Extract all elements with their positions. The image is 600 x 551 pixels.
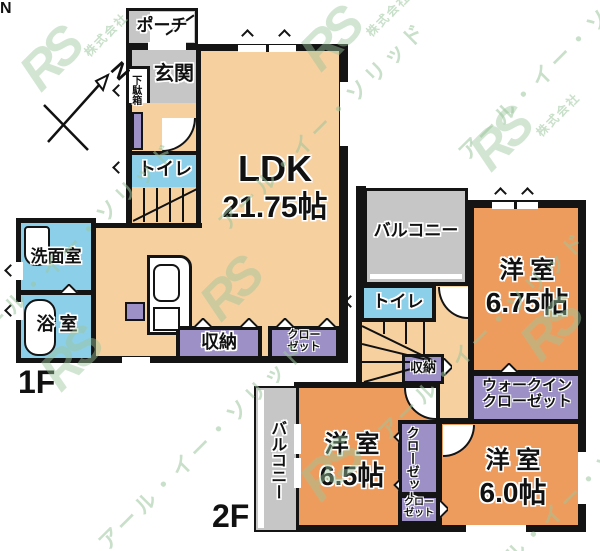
window-1f-bottom — [122, 357, 150, 364]
bedroom-65-name: 洋 室 — [300, 432, 404, 458]
hall-closet-1f — [132, 112, 143, 150]
storage-1f-label: 収納 — [180, 333, 258, 352]
closet-2f-vertical-label-1: クロー — [405, 426, 420, 465]
bedroom-60-name: 洋 室 — [448, 448, 578, 474]
bathroom-label: 浴 室 — [20, 315, 94, 334]
closet-door-mark — [276, 318, 294, 327]
svg-text:N: N — [106, 57, 130, 86]
entrance-label: 玄関 — [146, 64, 202, 86]
storage-door-mark — [240, 318, 258, 327]
window-chevron — [4, 304, 17, 317]
bedroom-675-size: 6.75帖 — [470, 288, 584, 318]
window-chevron — [4, 264, 17, 277]
bedroom-675-name: 洋 室 — [472, 258, 582, 284]
watermark-company: 株式会社 — [362, 0, 414, 40]
porch-label: ポーチ — [128, 17, 196, 35]
storage-door-mark — [194, 318, 212, 327]
kitchen-stove — [153, 307, 180, 331]
compass-north-arrow: N — [30, 50, 130, 155]
window-chevron — [494, 187, 507, 200]
stairs-2f-lines — [362, 322, 442, 386]
closet-2f-small-label-2: ゼット — [404, 508, 434, 519]
toilet-1f-label: トイレ — [130, 160, 200, 179]
floor-plan-canvas: RS 株式会社 RS 株式会社 RS 株式会社 RS RS RS RS アール・… — [0, 0, 600, 551]
washroom-label: 洗面室 — [18, 248, 94, 266]
window-2f-bottom — [466, 525, 526, 532]
wall-segment — [356, 186, 366, 288]
refrigerator-space — [125, 302, 145, 321]
closet-door-mark — [318, 318, 336, 327]
watermark-brand: アール・イー・ソリッド — [451, 0, 600, 166]
window-1f-right — [340, 82, 349, 146]
balcony-2f-top-label: バルコニー — [366, 222, 466, 240]
closet-1f-label-1: クロー — [288, 329, 321, 341]
floor-2f-label: 2F — [212, 498, 249, 535]
entrance-door-gap — [148, 42, 186, 50]
stairs-1f-lines — [133, 188, 199, 222]
closet-1f-label-2: ゼット — [288, 341, 321, 353]
window-tick — [514, 202, 517, 209]
bedroom-60-size: 6.0帖 — [446, 478, 580, 508]
walkin-closet-label-2: クローゼット — [482, 393, 572, 410]
ldk-name-label: LDK — [205, 150, 345, 189]
window-chevron — [241, 29, 254, 42]
storage-2f-door-mark — [444, 358, 452, 376]
storage-2f-label: 収納 — [404, 361, 442, 375]
window-chevron — [278, 29, 291, 42]
watermark-rs-logo: RS — [458, 97, 543, 182]
walkin-closet-label-1: ウォークイン — [482, 377, 572, 394]
bedroom-65-size: 6.5帖 — [298, 462, 406, 491]
closet-2f-small-label-1: クロー — [404, 497, 434, 508]
shoe-cabinet-label: 下駄箱 — [129, 70, 140, 110]
balcony-left-rail-line — [258, 390, 264, 528]
window-tick — [266, 45, 269, 52]
balcony-rail-line — [370, 274, 462, 279]
washroom-door-mark — [60, 284, 78, 293]
bedroom-675-door-mark — [500, 363, 518, 372]
kitchen-sink — [153, 264, 180, 302]
window-chevron — [112, 161, 125, 174]
ldk-size-label: 21.75帖 — [200, 192, 350, 224]
watermark-company: 株式会社 — [532, 89, 584, 141]
toilet-2f-label: トイレ — [364, 293, 432, 311]
window-chevron — [521, 187, 534, 200]
floor-1f-label: 1F — [18, 364, 55, 401]
balcony-2f-left-label: バルコニー — [268, 400, 285, 520]
